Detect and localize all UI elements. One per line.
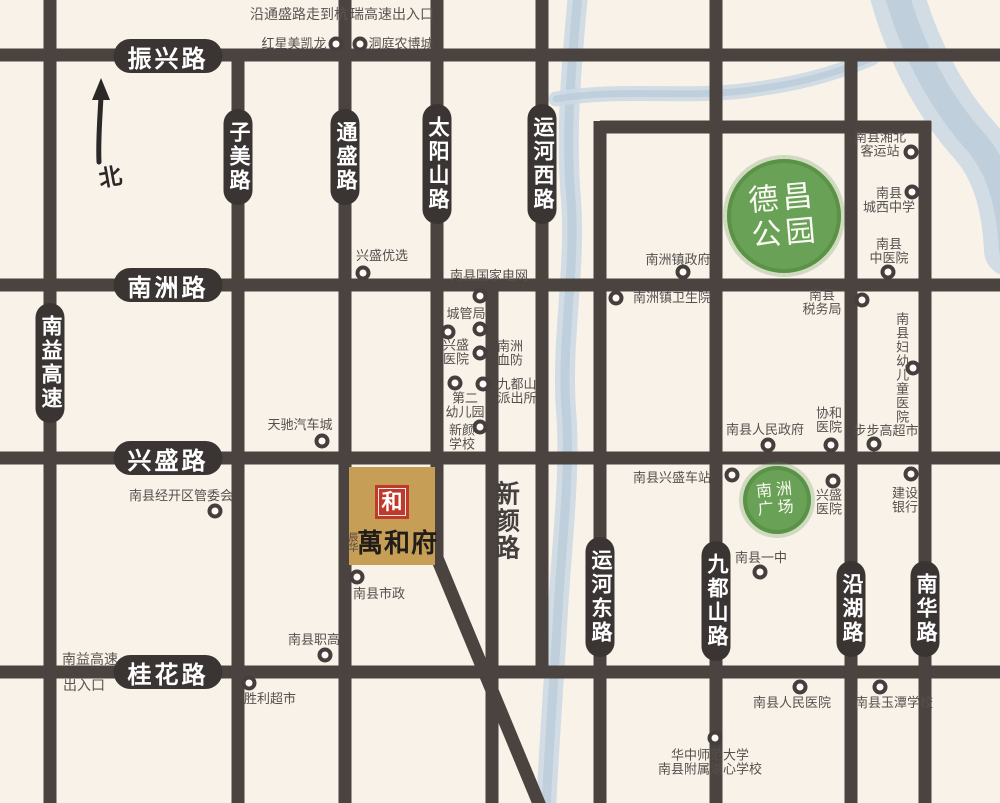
poi-dot bbox=[725, 468, 740, 483]
poi-dot bbox=[708, 731, 723, 746]
poi-label: 南县 城西中学 bbox=[863, 187, 915, 216]
poi-dot bbox=[356, 266, 371, 281]
poi-label: 兴盛优选 bbox=[356, 249, 408, 263]
poi-dot bbox=[329, 37, 344, 52]
location-map: 德昌 公园南洲 广场 振兴路南洲路兴盛路桂花路南益高速子美路通盛路太阳山路运河西… bbox=[0, 0, 1000, 803]
poi-dot bbox=[855, 293, 870, 308]
poi-label: 城管局 bbox=[446, 307, 485, 321]
poi-dot bbox=[473, 322, 488, 337]
poi-dot bbox=[353, 37, 368, 52]
poi-dot bbox=[208, 504, 223, 519]
poi-label: 南洲镇政府 bbox=[645, 253, 710, 267]
poi-dot bbox=[609, 291, 624, 306]
poi-dot bbox=[753, 565, 768, 580]
poi-label: 天驰汽车城 bbox=[267, 418, 332, 432]
poi-label: 南县玉潭学校 bbox=[855, 696, 933, 710]
poi-dot bbox=[793, 680, 808, 695]
poi-dot bbox=[881, 265, 896, 280]
poi-label: 南县妇幼儿童医院 bbox=[894, 312, 908, 424]
poi-label: 南县经开区管委会 bbox=[129, 489, 233, 503]
poi-label: 南洲 血防 bbox=[497, 340, 523, 369]
poi-dot bbox=[824, 438, 839, 453]
poi-label: 步步高超市 bbox=[853, 424, 918, 438]
poi-dot bbox=[448, 376, 463, 391]
poi-label: 胜利超市 bbox=[244, 692, 296, 706]
poi-label: 兴盛 医院 bbox=[816, 489, 842, 518]
poi-dot bbox=[473, 289, 488, 304]
poi-label: 南县市政 bbox=[353, 587, 405, 601]
poi-dot bbox=[315, 434, 330, 449]
poi-label: 建设 银行 bbox=[892, 487, 918, 516]
poi-label: 南县 中医院 bbox=[869, 238, 908, 267]
poi-dot bbox=[242, 676, 257, 691]
poi-dot bbox=[904, 467, 919, 482]
poi-label: 南县人民医院 bbox=[753, 696, 831, 710]
poi-dot bbox=[826, 474, 841, 489]
poi-label: 兴盛 医院 bbox=[443, 339, 469, 368]
poi-dot bbox=[318, 648, 333, 663]
poi-label: 南县 税务局 bbox=[802, 289, 841, 318]
poi-label: 南县职高 bbox=[288, 633, 340, 647]
poi-label: 新颜 学校 bbox=[449, 424, 475, 453]
poi-label: 洞庭农博城 bbox=[368, 37, 433, 51]
poi-label: 九都山 派出所 bbox=[497, 378, 536, 407]
poi-label: 南县国家电网 bbox=[450, 269, 528, 283]
poi-dot bbox=[476, 377, 491, 392]
poi-label: 南县一中 bbox=[735, 551, 787, 565]
poi-dot bbox=[873, 680, 888, 695]
poi-label: 红星美凯龙 bbox=[261, 37, 326, 51]
poi-label: 协和 医院 bbox=[816, 407, 842, 436]
poi-dot bbox=[350, 570, 365, 585]
poi-label: 华中师范大学 南县附属湖心学校 bbox=[658, 749, 762, 778]
poi-layer: 红星美凯龙洞庭农博城兴盛优选南县国家电网城管局兴盛 医院南洲 血防第二 幼儿园九… bbox=[0, 0, 1000, 803]
poi-label: 南洲镇卫生院 bbox=[633, 291, 711, 305]
poi-dot bbox=[761, 438, 776, 453]
poi-dot bbox=[473, 346, 488, 361]
poi-label: 南县湘北 客运站 bbox=[854, 131, 906, 160]
poi-dot bbox=[867, 437, 882, 452]
poi-label: 第二 幼儿园 bbox=[445, 392, 484, 421]
poi-label: 南县兴盛车站 bbox=[633, 471, 711, 485]
poi-label: 南县人民政府 bbox=[726, 423, 804, 437]
